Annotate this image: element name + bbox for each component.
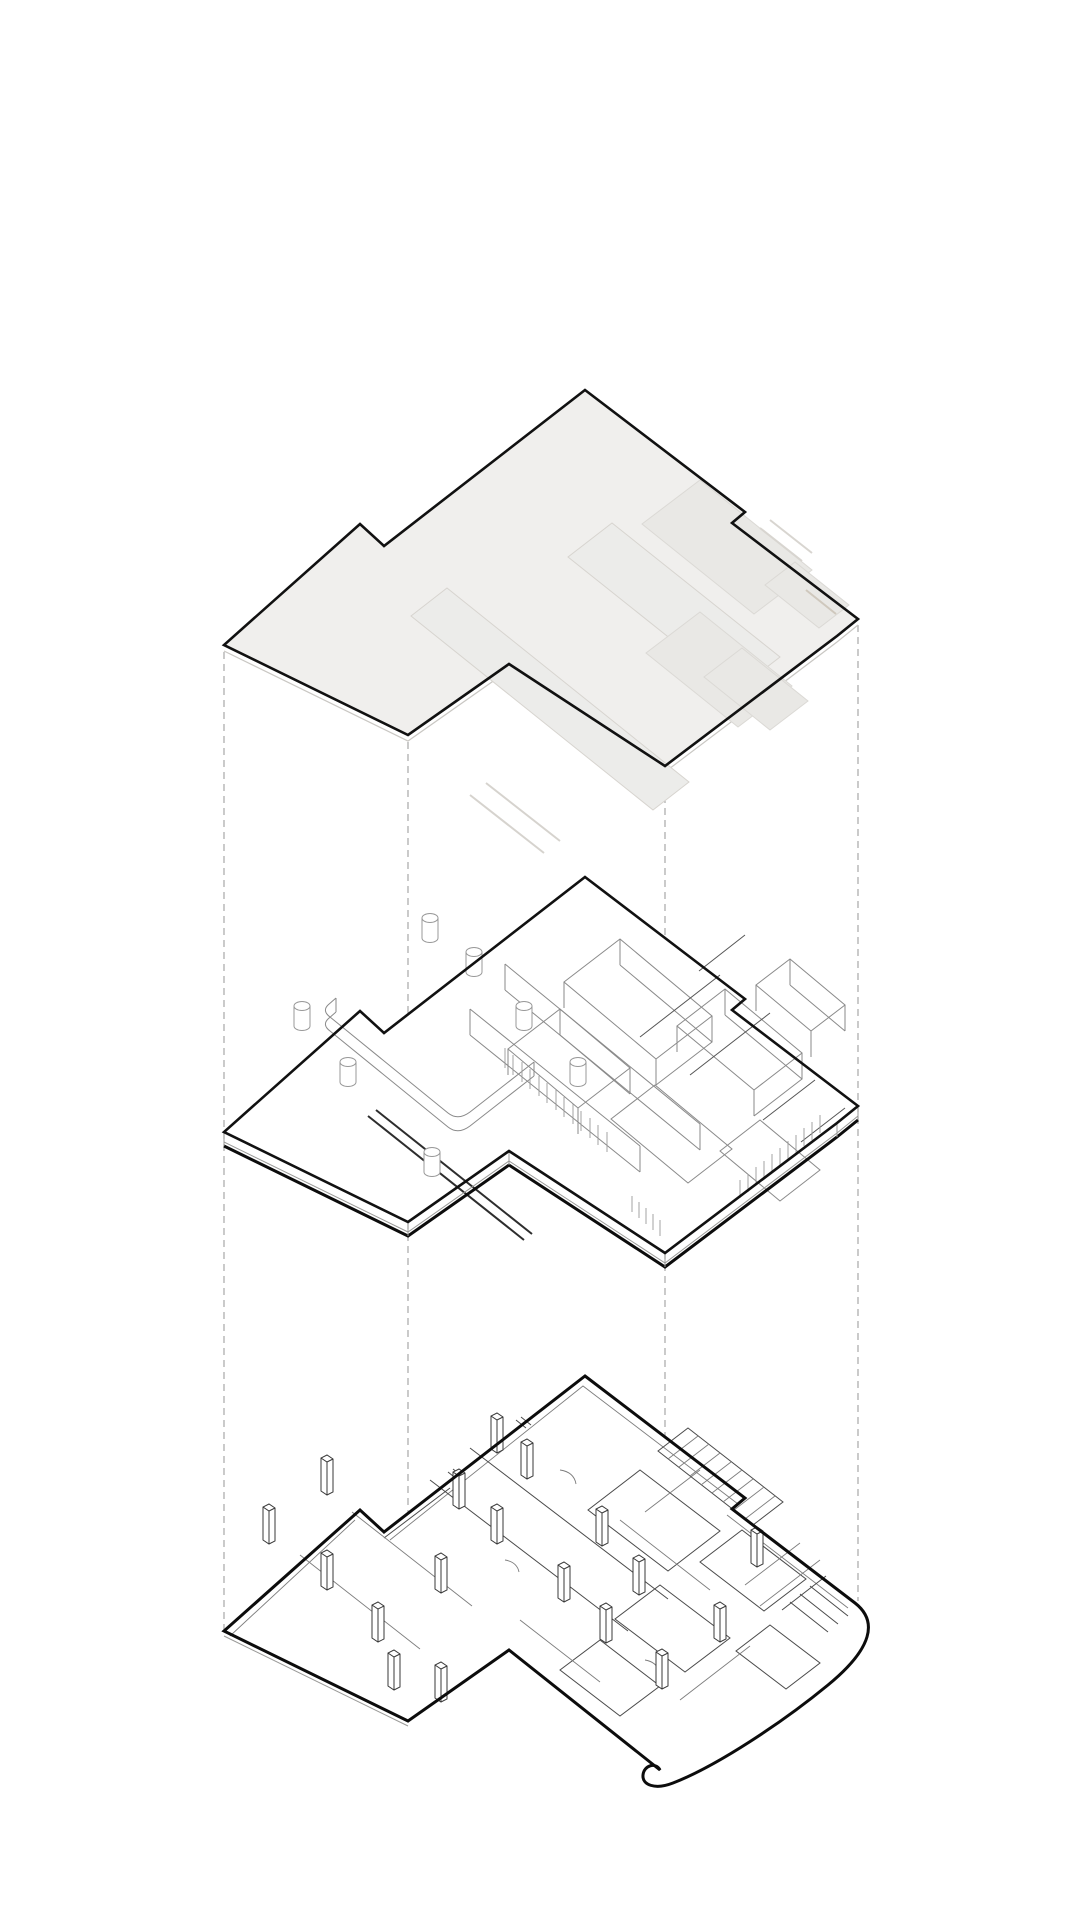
exploded-axon-diagram [0, 0, 1080, 1920]
column [633, 1555, 645, 1595]
column [435, 1553, 447, 1593]
layer-middle [224, 877, 858, 1267]
round-column [340, 1058, 356, 1087]
round-column [424, 1148, 440, 1177]
diagram-canvas [0, 0, 1080, 1920]
column [372, 1602, 384, 1642]
column [600, 1603, 612, 1643]
column [596, 1506, 608, 1546]
column [521, 1439, 533, 1479]
column [656, 1649, 668, 1689]
column [558, 1562, 570, 1602]
round-column [294, 1002, 310, 1031]
column [714, 1602, 726, 1642]
round-column [422, 914, 438, 943]
round-column [570, 1058, 586, 1087]
column [388, 1650, 400, 1690]
layer-bottom [224, 1376, 868, 1786]
column [321, 1455, 333, 1495]
column [491, 1504, 503, 1544]
column [263, 1504, 275, 1544]
layer-roof [224, 390, 858, 853]
column [321, 1550, 333, 1590]
round-column [516, 1002, 532, 1031]
